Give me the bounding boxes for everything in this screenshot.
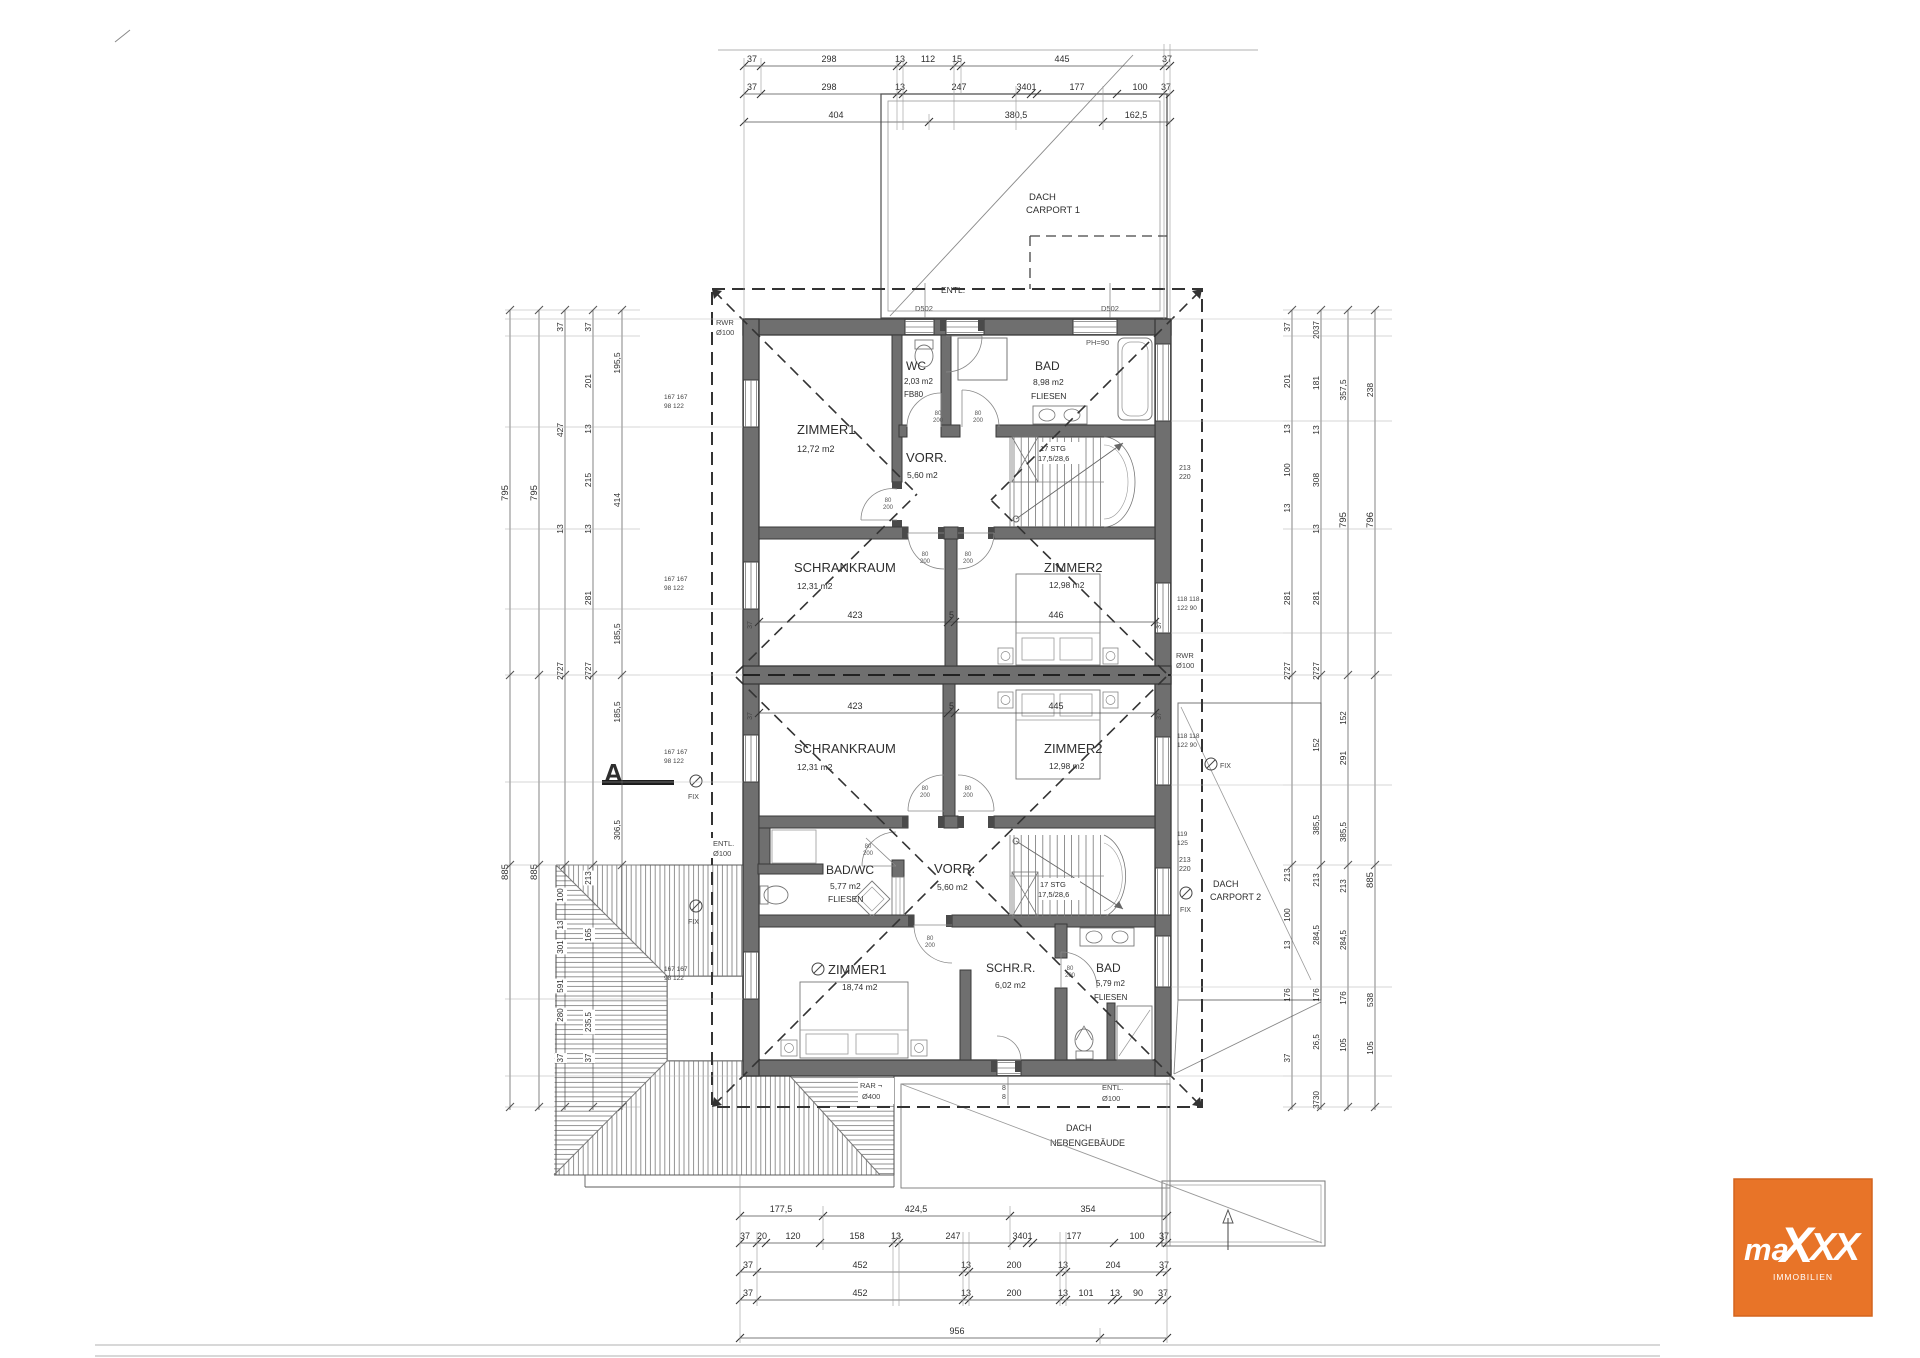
- svg-text:220: 220: [1179, 474, 1191, 481]
- svg-text:167 167: 167 167: [664, 966, 688, 973]
- svg-text:ENTL.: ENTL.: [1102, 1083, 1123, 1092]
- svg-text:105: 105: [1339, 1038, 1348, 1052]
- svg-text:37: 37: [747, 82, 757, 92]
- svg-text:591: 591: [556, 979, 565, 993]
- svg-text:5,60 m2: 5,60 m2: [937, 882, 968, 892]
- svg-text:885: 885: [529, 864, 540, 880]
- svg-text:37: 37: [556, 1053, 565, 1062]
- svg-text:FIX: FIX: [688, 919, 699, 926]
- svg-text:8,98 m2: 8,98 m2: [1033, 377, 1064, 387]
- svg-text:37: 37: [555, 322, 565, 332]
- svg-text:118 118: 118 118: [1177, 596, 1200, 603]
- svg-text:284,5: 284,5: [1339, 929, 1348, 950]
- svg-text:152: 152: [1312, 738, 1321, 752]
- svg-text:423: 423: [847, 610, 862, 620]
- svg-text:177: 177: [1069, 82, 1084, 92]
- svg-text:17,5/28,6: 17,5/28,6: [1038, 454, 1069, 463]
- svg-text:Ø100: Ø100: [1176, 661, 1194, 670]
- svg-text:80: 80: [922, 552, 929, 558]
- svg-text:13: 13: [1110, 1288, 1120, 1298]
- svg-text:6,02 m2: 6,02 m2: [995, 980, 1026, 990]
- svg-text:424,5: 424,5: [905, 1204, 928, 1214]
- svg-text:12,98 m2: 12,98 m2: [1049, 580, 1085, 590]
- svg-text:15: 15: [952, 54, 962, 64]
- svg-text:80: 80: [1067, 966, 1074, 972]
- svg-text:13: 13: [891, 1231, 901, 1241]
- svg-text:281: 281: [583, 591, 593, 605]
- svg-text:DACH: DACH: [1066, 1123, 1092, 1133]
- svg-text:200: 200: [1006, 1260, 1021, 1270]
- svg-text:284,5: 284,5: [1312, 924, 1321, 945]
- svg-text:NEBENGEBÄUDE: NEBENGEBÄUDE: [1050, 1138, 1125, 1148]
- svg-text:80: 80: [927, 936, 934, 942]
- svg-text:37: 37: [584, 1053, 593, 1062]
- svg-text:200: 200: [883, 505, 894, 511]
- svg-text:12,72 m2: 12,72 m2: [797, 444, 835, 454]
- svg-text:FLIESEN: FLIESEN: [1094, 993, 1128, 1002]
- svg-text:13: 13: [1283, 940, 1292, 949]
- svg-text:165: 165: [584, 928, 593, 942]
- svg-text:445: 445: [1054, 54, 1069, 64]
- svg-text:FLIESEN: FLIESEN: [1031, 391, 1066, 401]
- svg-text:200: 200: [1006, 1288, 1021, 1298]
- svg-text:13: 13: [961, 1288, 971, 1298]
- svg-text:37: 37: [740, 1231, 750, 1241]
- svg-text:100: 100: [1129, 1231, 1144, 1241]
- svg-text:98 122: 98 122: [664, 975, 684, 982]
- svg-text:37: 37: [747, 621, 754, 629]
- svg-text:213: 213: [1312, 873, 1321, 887]
- svg-text:FIX: FIX: [688, 794, 699, 801]
- svg-text:18,74 m2: 18,74 m2: [842, 982, 878, 992]
- svg-text:200: 200: [925, 943, 936, 949]
- svg-text:340: 340: [1016, 82, 1031, 92]
- svg-text:37: 37: [1283, 1053, 1292, 1062]
- svg-text:235,5: 235,5: [584, 1011, 593, 1032]
- svg-text:427: 427: [555, 423, 565, 437]
- svg-text:13: 13: [556, 920, 565, 929]
- svg-text:FB80: FB80: [904, 390, 924, 399]
- svg-text:Ø100: Ø100: [1102, 1094, 1120, 1103]
- svg-text:446: 446: [1048, 610, 1063, 620]
- svg-text:8: 8: [1002, 1085, 1006, 1092]
- svg-text:167 167: 167 167: [664, 749, 688, 756]
- svg-text:37: 37: [747, 54, 757, 64]
- svg-text:ZIMMER2: ZIMMER2: [1044, 560, 1103, 575]
- svg-text:RWR: RWR: [716, 318, 734, 327]
- svg-text:298: 298: [821, 82, 836, 92]
- svg-text:101: 101: [1078, 1288, 1093, 1298]
- svg-text:215: 215: [583, 473, 593, 487]
- svg-text:37: 37: [1162, 54, 1172, 64]
- svg-text:37: 37: [1156, 712, 1163, 720]
- svg-text:CARPORT 2: CARPORT 2: [1210, 892, 1261, 902]
- svg-text:37: 37: [1159, 1260, 1169, 1270]
- svg-text:13: 13: [1283, 503, 1292, 512]
- svg-text:FIX: FIX: [1180, 907, 1191, 914]
- svg-text:247: 247: [945, 1231, 960, 1241]
- svg-text:Ø100: Ø100: [716, 328, 734, 337]
- svg-text:3730: 3730: [1312, 1091, 1321, 1109]
- svg-text:FIX: FIX: [1220, 763, 1231, 770]
- svg-text:404: 404: [828, 110, 843, 120]
- svg-text:13: 13: [583, 424, 593, 434]
- svg-text:177,5: 177,5: [770, 1204, 793, 1214]
- svg-text:200: 200: [920, 559, 931, 565]
- svg-text:RAR ¬: RAR ¬: [860, 1081, 883, 1090]
- svg-text:ENTL.: ENTL.: [713, 839, 734, 848]
- svg-text:308: 308: [1311, 473, 1321, 487]
- svg-text:80: 80: [865, 844, 872, 850]
- svg-text:125: 125: [1177, 840, 1188, 847]
- svg-text:100: 100: [1283, 463, 1292, 477]
- svg-text:340: 340: [1012, 1231, 1027, 1241]
- svg-text:280: 280: [556, 1008, 565, 1022]
- svg-text:37: 37: [1159, 1231, 1169, 1241]
- svg-text:538: 538: [1365, 993, 1375, 1007]
- svg-text:80: 80: [965, 786, 972, 792]
- svg-text:213: 213: [1179, 857, 1191, 864]
- svg-text:2727: 2727: [1283, 662, 1292, 680]
- svg-text:37: 37: [743, 1260, 753, 1270]
- svg-text:DACH: DACH: [1029, 192, 1056, 203]
- svg-text:220: 220: [1179, 866, 1191, 873]
- svg-text:Ø100: Ø100: [713, 849, 731, 858]
- svg-text:17 STG: 17 STG: [1040, 880, 1066, 889]
- svg-text:D502: D502: [915, 304, 933, 313]
- svg-text:181: 181: [1311, 376, 1321, 390]
- svg-text:13: 13: [1058, 1260, 1068, 1270]
- svg-text:201: 201: [583, 374, 593, 388]
- svg-text:119: 119: [1177, 831, 1188, 838]
- svg-text:8: 8: [1002, 1094, 1006, 1101]
- svg-text:105: 105: [1366, 1041, 1375, 1055]
- svg-text:204: 204: [1105, 1260, 1120, 1270]
- svg-text:VORR.: VORR.: [906, 450, 947, 465]
- svg-text:162,5: 162,5: [1125, 110, 1148, 120]
- svg-text:80: 80: [935, 411, 942, 417]
- svg-text:423: 423: [847, 701, 862, 711]
- svg-text:185,5: 185,5: [612, 701, 622, 723]
- svg-text:SCHRANKRAUM: SCHRANKRAUM: [794, 741, 896, 756]
- svg-text:185,5: 185,5: [612, 623, 622, 645]
- svg-text:213: 213: [1283, 868, 1292, 882]
- svg-text:13: 13: [1058, 1288, 1068, 1298]
- svg-text:37: 37: [583, 322, 593, 332]
- svg-text:200: 200: [920, 793, 931, 799]
- svg-text:98 122: 98 122: [664, 585, 684, 592]
- svg-text:DACH: DACH: [1213, 879, 1239, 889]
- svg-text:177: 177: [1066, 1231, 1081, 1241]
- svg-text:201: 201: [1282, 374, 1292, 388]
- svg-text:13: 13: [961, 1260, 971, 1270]
- svg-text:200: 200: [973, 418, 984, 424]
- svg-text:291: 291: [1338, 751, 1348, 765]
- svg-text:BAD/WC: BAD/WC: [826, 863, 874, 877]
- svg-text:357,5: 357,5: [1338, 379, 1348, 401]
- svg-text:306,5: 306,5: [613, 819, 622, 840]
- svg-text:385,5: 385,5: [1312, 814, 1321, 835]
- svg-text:385,5: 385,5: [1339, 821, 1348, 842]
- svg-text:122 90: 122 90: [1177, 605, 1197, 612]
- svg-text:200: 200: [963, 793, 974, 799]
- svg-text:37: 37: [1282, 322, 1292, 332]
- svg-text:213: 213: [1339, 879, 1348, 893]
- svg-text:Ø400: Ø400: [862, 1092, 880, 1101]
- svg-text:98 122: 98 122: [664, 403, 684, 410]
- svg-text:5,79 m2: 5,79 m2: [1096, 979, 1125, 988]
- svg-text:13: 13: [1282, 424, 1292, 434]
- svg-text:X: X: [1832, 1226, 1862, 1269]
- svg-text:100: 100: [1283, 908, 1292, 922]
- svg-text:120: 120: [785, 1231, 800, 1241]
- svg-text:112: 112: [921, 54, 935, 64]
- svg-text:2727: 2727: [556, 662, 565, 680]
- svg-text:795: 795: [529, 485, 540, 501]
- svg-text:17,5/28,6: 17,5/28,6: [1038, 890, 1069, 899]
- svg-text:167 167: 167 167: [664, 576, 688, 583]
- svg-text:195,5: 195,5: [612, 352, 622, 374]
- svg-text:37: 37: [1158, 1288, 1168, 1298]
- svg-text:118 118: 118 118: [1177, 733, 1200, 740]
- svg-text:200: 200: [863, 851, 874, 857]
- svg-text:956: 956: [949, 1326, 964, 1336]
- svg-text:885: 885: [1365, 872, 1376, 888]
- svg-text:1: 1: [1031, 82, 1036, 92]
- svg-text:2,03 m2: 2,03 m2: [904, 377, 933, 386]
- svg-text:37: 37: [1161, 82, 1171, 92]
- svg-text:176: 176: [1312, 988, 1321, 1002]
- svg-text:BAD: BAD: [1035, 359, 1060, 373]
- svg-text:213: 213: [1179, 465, 1191, 472]
- svg-text:IMMOBILIEN: IMMOBILIEN: [1773, 1272, 1833, 1282]
- svg-text:BAD: BAD: [1096, 961, 1121, 975]
- svg-text:158: 158: [849, 1231, 864, 1241]
- svg-text:2727: 2727: [584, 662, 593, 680]
- svg-text:98 122: 98 122: [664, 758, 684, 765]
- svg-text:452: 452: [852, 1288, 867, 1298]
- svg-text:37: 37: [1156, 621, 1163, 629]
- svg-text:152: 152: [1339, 711, 1348, 725]
- svg-text:1: 1: [1027, 1231, 1032, 1241]
- svg-text:5,77 m2: 5,77 m2: [830, 881, 861, 891]
- svg-text:301: 301: [556, 940, 565, 954]
- svg-text:354: 354: [1080, 1204, 1095, 1214]
- svg-text:167 167: 167 167: [664, 394, 688, 401]
- svg-text:ZIMMER2: ZIMMER2: [1044, 741, 1103, 756]
- svg-text:5: 5: [949, 610, 954, 620]
- svg-text:SCHRANKRAUM: SCHRANKRAUM: [794, 560, 896, 575]
- svg-text:200: 200: [963, 559, 974, 565]
- svg-text:ZIMMER1: ZIMMER1: [828, 962, 887, 977]
- svg-text:445: 445: [1048, 701, 1063, 711]
- svg-text:WC: WC: [906, 359, 926, 373]
- svg-text:238: 238: [1365, 383, 1375, 397]
- svg-text:213: 213: [584, 871, 593, 885]
- svg-text:80: 80: [885, 498, 892, 504]
- svg-text:26,5: 26,5: [1312, 1034, 1321, 1050]
- svg-text:12,98 m2: 12,98 m2: [1049, 761, 1085, 771]
- svg-text:CARPORT 1: CARPORT 1: [1026, 205, 1080, 216]
- svg-text:414: 414: [612, 493, 622, 507]
- svg-text:13: 13: [895, 82, 905, 92]
- svg-text:100: 100: [556, 888, 565, 902]
- svg-text:17 STG: 17 STG: [1040, 444, 1066, 453]
- svg-text:452: 452: [852, 1260, 867, 1270]
- svg-text:5,60 m2: 5,60 m2: [907, 470, 938, 480]
- svg-text:2727: 2727: [1312, 662, 1321, 680]
- svg-text:PH=90: PH=90: [1086, 338, 1109, 347]
- svg-text:13: 13: [895, 54, 905, 64]
- svg-text:200: 200: [933, 418, 944, 424]
- svg-text:SCHR.R.: SCHR.R.: [986, 961, 1035, 975]
- svg-text:298: 298: [821, 54, 836, 64]
- svg-text:80: 80: [965, 552, 972, 558]
- svg-text:5: 5: [949, 701, 954, 711]
- svg-text:281: 281: [1282, 591, 1292, 605]
- svg-text:80: 80: [975, 411, 982, 417]
- svg-text:122 90: 122 90: [1177, 742, 1197, 749]
- svg-text:RWR: RWR: [1176, 651, 1194, 660]
- svg-text:80: 80: [922, 786, 929, 792]
- svg-text:885: 885: [500, 864, 511, 880]
- svg-text:796: 796: [1365, 512, 1376, 528]
- svg-text:37: 37: [743, 1288, 753, 1298]
- svg-text:795: 795: [500, 485, 511, 501]
- svg-text:795: 795: [1338, 512, 1349, 528]
- svg-text:13: 13: [1311, 425, 1321, 435]
- svg-text:281: 281: [1311, 591, 1321, 605]
- svg-text:100: 100: [1132, 82, 1147, 92]
- svg-text:90: 90: [1133, 1288, 1143, 1298]
- svg-text:37: 37: [747, 712, 754, 720]
- svg-text:20: 20: [757, 1231, 767, 1241]
- svg-text:FLIESEN: FLIESEN: [828, 894, 863, 904]
- svg-text:176: 176: [1283, 988, 1292, 1002]
- svg-text:176: 176: [1339, 991, 1348, 1005]
